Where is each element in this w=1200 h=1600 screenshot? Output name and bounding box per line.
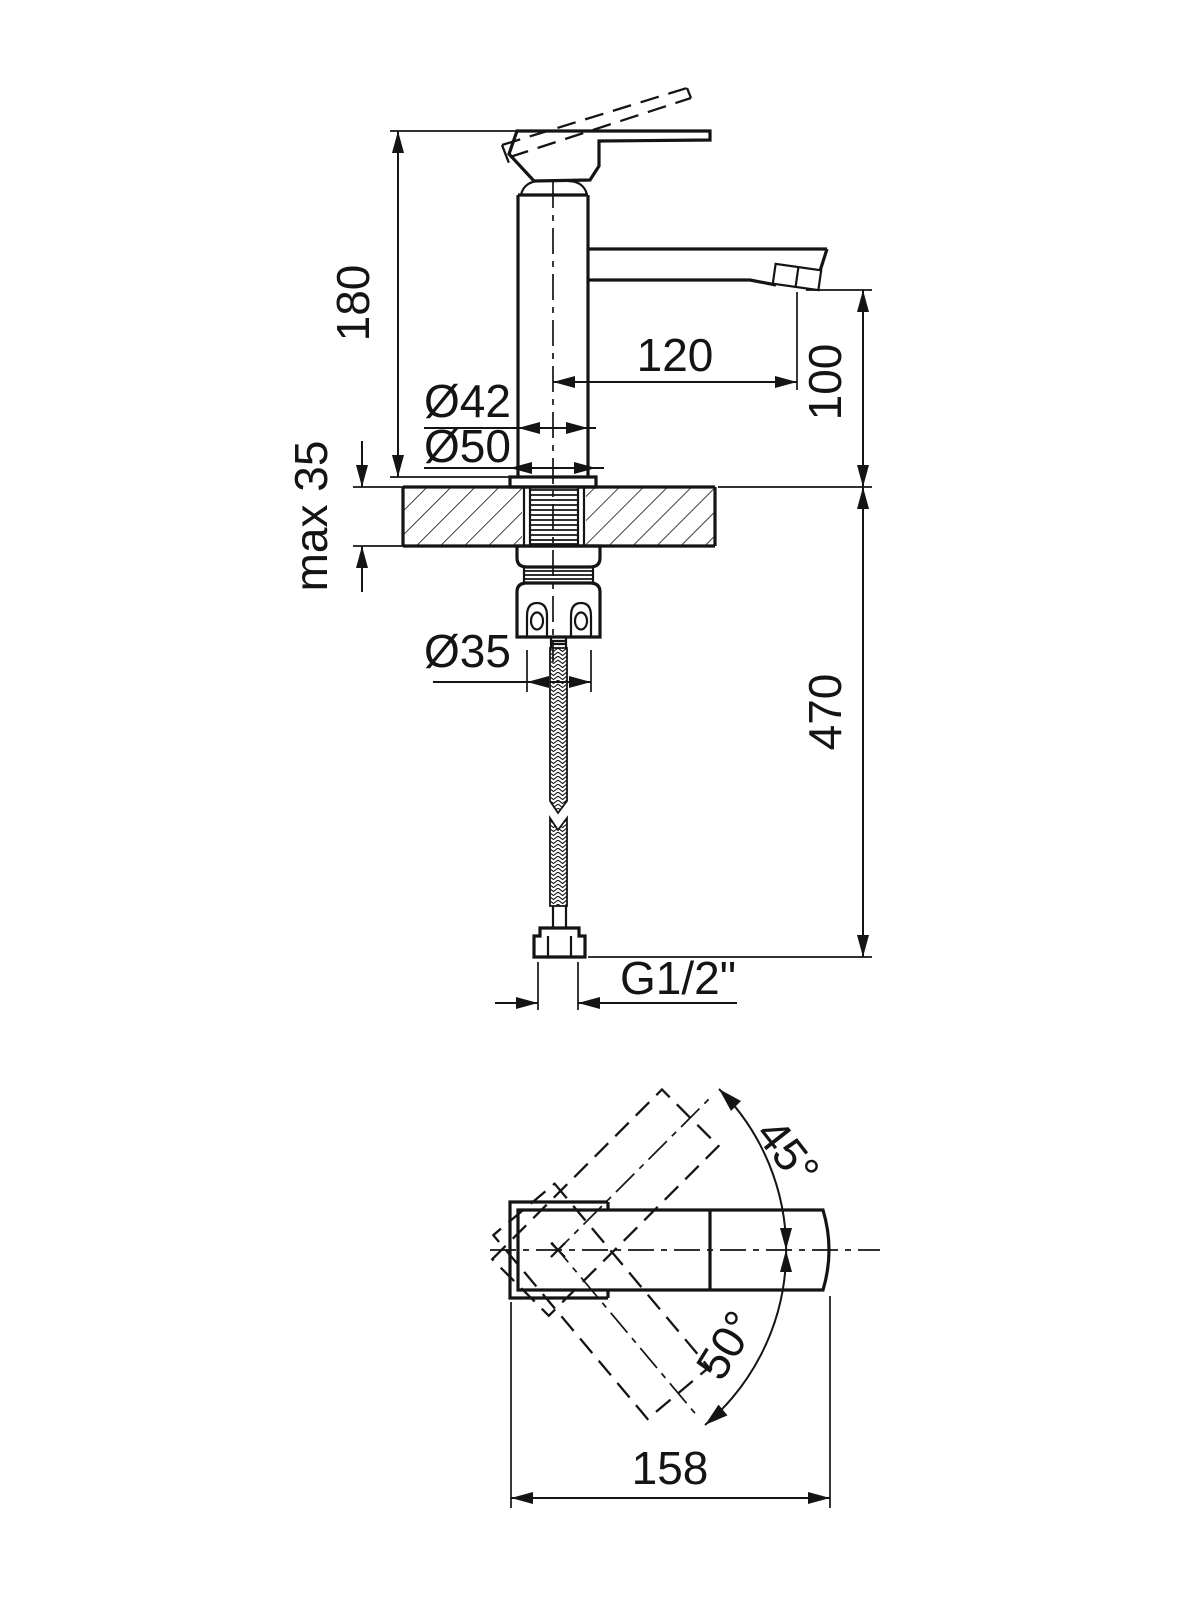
dim-shank-diameter-label: Ø35 — [424, 625, 511, 677]
dim-angle-down-label: 50° — [686, 1302, 767, 1389]
dim-thread: G1/2" — [495, 952, 737, 1010]
dim-hose-length: 470 — [588, 487, 872, 957]
handle-lever — [509, 131, 710, 195]
mounting-nut-assembly — [517, 546, 600, 648]
flexible-hose — [534, 648, 585, 957]
dim-spout-reach-label: 120 — [637, 329, 714, 381]
handle-rotated-down-dashed — [493, 1184, 728, 1442]
dim-spout-height: 100 — [718, 290, 872, 487]
dim-thread-label: G1/2" — [620, 952, 736, 1004]
spout — [588, 249, 827, 290]
dim-hose-length-label: 470 — [799, 674, 851, 751]
dim-height-label: 180 — [327, 265, 379, 342]
plan-view: 45° 50° 158 — [490, 1068, 880, 1508]
counter-section — [403, 487, 715, 546]
counter-hatch-left — [404, 488, 522, 545]
drawing-sheet: 180 max 35 Ø42 Ø50 — [0, 0, 1200, 1600]
threaded-shank — [531, 490, 577, 544]
side-view: 180 max 35 Ø42 Ø50 — [285, 88, 872, 1010]
dim-base-diameter-label: Ø50 — [424, 420, 511, 472]
dim-overall-length: 158 — [511, 1296, 830, 1508]
dim-angle-up-label: 45° — [746, 1109, 830, 1196]
counter-hatch-right — [586, 488, 714, 545]
dim-max-thickness: max 35 — [285, 441, 403, 592]
hose-end-nut — [534, 928, 585, 957]
dim-spout-height-label: 100 — [799, 344, 851, 421]
dim-overall-length-label: 158 — [632, 1442, 709, 1494]
dim-max-thickness-label: max 35 — [285, 441, 337, 592]
faucet-technical-drawing: 180 max 35 Ø42 Ø50 — [0, 0, 1200, 1600]
fixing-ears — [527, 603, 591, 637]
